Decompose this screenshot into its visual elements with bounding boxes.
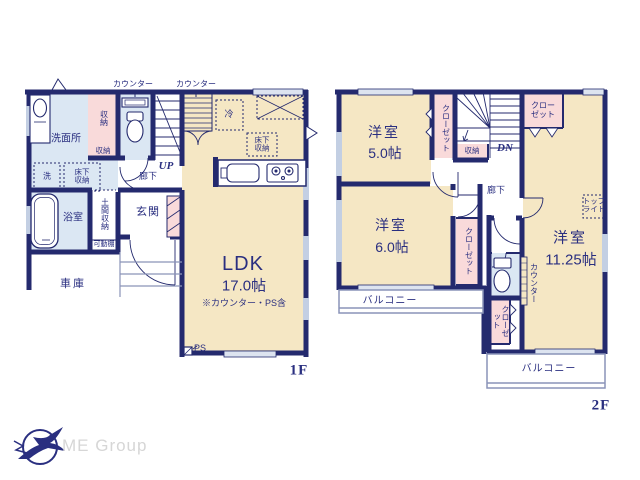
floorplan-graphics (0, 0, 640, 480)
counter-label: カウンター (529, 260, 538, 306)
fridge-label: 冷 (224, 109, 233, 119)
room-label-west-a: 洋室 (368, 125, 400, 141)
storage-label: 収納 (465, 147, 480, 155)
shoe-cabinet-icon (167, 196, 180, 237)
washer-label: 洗 (43, 173, 51, 182)
me-group-logo-icon (14, 427, 65, 464)
logo-text: ME Group (62, 436, 147, 456)
room-label-west-c: 洋室 (553, 231, 587, 248)
stairs-up-icon (155, 96, 180, 155)
room-label-garage: 車庫 (60, 278, 86, 290)
stairs-up-label: UP (159, 160, 174, 172)
counter-strip-icon (521, 257, 527, 305)
stairs-down-label: DN (497, 142, 513, 154)
room-label-ldk: LDK (222, 253, 264, 275)
room-label-entrance: 玄関 (136, 206, 160, 218)
counter-label: カウンター (113, 81, 153, 90)
movable-shelf-label: 可動棚 (94, 241, 115, 249)
balcony-label: バルコニー (522, 363, 577, 374)
room-size-west-c: 11.25帖 (545, 253, 596, 270)
hallway-label: 廊下 (139, 171, 157, 181)
closet-label: クローゼット (464, 223, 473, 279)
floor2-tag: 2F (592, 398, 611, 415)
floor1-tag: 1F (290, 363, 309, 380)
vanity-sink-icon (30, 95, 50, 143)
hallway-label: 廊下 (487, 185, 505, 195)
toilet-icon (494, 258, 511, 292)
bathtub-icon (31, 194, 58, 248)
wall-vent-icon (306, 126, 317, 140)
room-size-west-b: 6.0帖 (375, 240, 408, 256)
balcony-label: バルコニー (363, 295, 418, 306)
room-label-west-b: 洋室 (375, 218, 407, 234)
storage-label: 収納 (99, 102, 108, 134)
kitchen-counter-icon (213, 157, 306, 187)
underfloor-storage-label: 床下収納 (254, 137, 271, 154)
underfloor-storage-label: 床下収納 (74, 169, 91, 186)
floorplan-page: カウンター カウンター 洗面所 収納 収納 洗 床下収納 UP 廊下 浴室 土間… (0, 0, 640, 480)
ldk-note-label: ※カウンター・PS含 (202, 298, 286, 308)
window-flap-icon (52, 79, 66, 90)
room-label-washroom: 洗面所 (51, 133, 81, 144)
room-label-bathroom: 浴室 (63, 212, 83, 223)
porch-steps-icon (120, 252, 182, 297)
doma-storage-label: 土間収納 (100, 195, 109, 233)
counter-label: カウンター (176, 81, 216, 90)
skylight-label: トップライト (582, 198, 607, 215)
closet-label: クローゼット (491, 304, 509, 338)
room-size-west-a: 5.0帖 (368, 146, 401, 162)
ps-label: PS (194, 343, 206, 353)
ldk-size-label: 17.0帖 (222, 279, 266, 296)
storage-label: 収納 (96, 147, 111, 155)
closet-label: クローゼット (441, 100, 450, 156)
closet-label: クローゼット (530, 102, 556, 120)
